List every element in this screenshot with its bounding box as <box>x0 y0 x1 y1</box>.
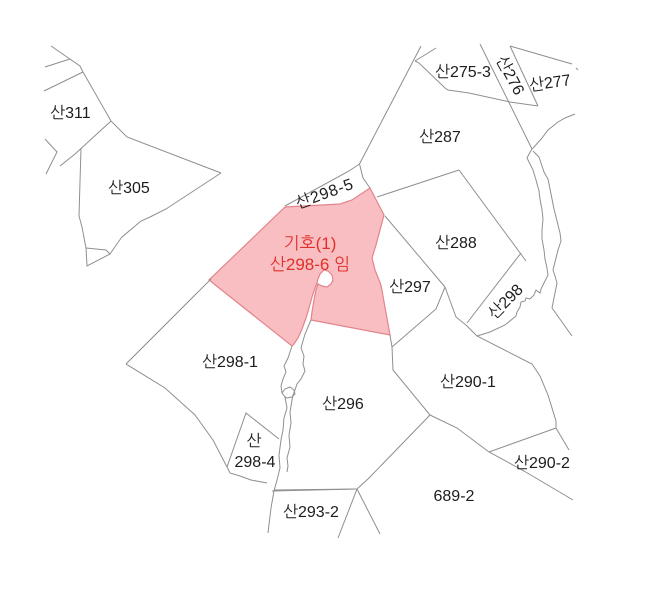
svg-text:311: 311 <box>65 105 91 122</box>
svg-text:287: 287 <box>434 129 461 146</box>
svg-text:305: 305 <box>123 180 150 197</box>
svg-text:298-1: 298-1 <box>217 354 258 371</box>
svg-text:298-6: 298-6 <box>286 255 329 274</box>
svg-text:298-4: 298-4 <box>235 454 276 471</box>
svg-text:297: 297 <box>404 279 431 296</box>
svg-text:290-1: 290-1 <box>455 374 496 391</box>
svg-text:(1): (1) <box>316 234 337 253</box>
svg-text:293-2: 293-2 <box>298 504 339 521</box>
svg-text:277: 277 <box>543 72 572 93</box>
svg-text:689-2: 689-2 <box>434 488 475 505</box>
svg-text:298: 298 <box>496 281 527 312</box>
svg-text:290-2: 290-2 <box>529 455 570 472</box>
svg-text:275-3: 275-3 <box>450 64 491 81</box>
svg-text:296: 296 <box>337 396 364 413</box>
svg-text:276: 276 <box>499 67 527 99</box>
svg-text:288: 288 <box>450 235 477 252</box>
